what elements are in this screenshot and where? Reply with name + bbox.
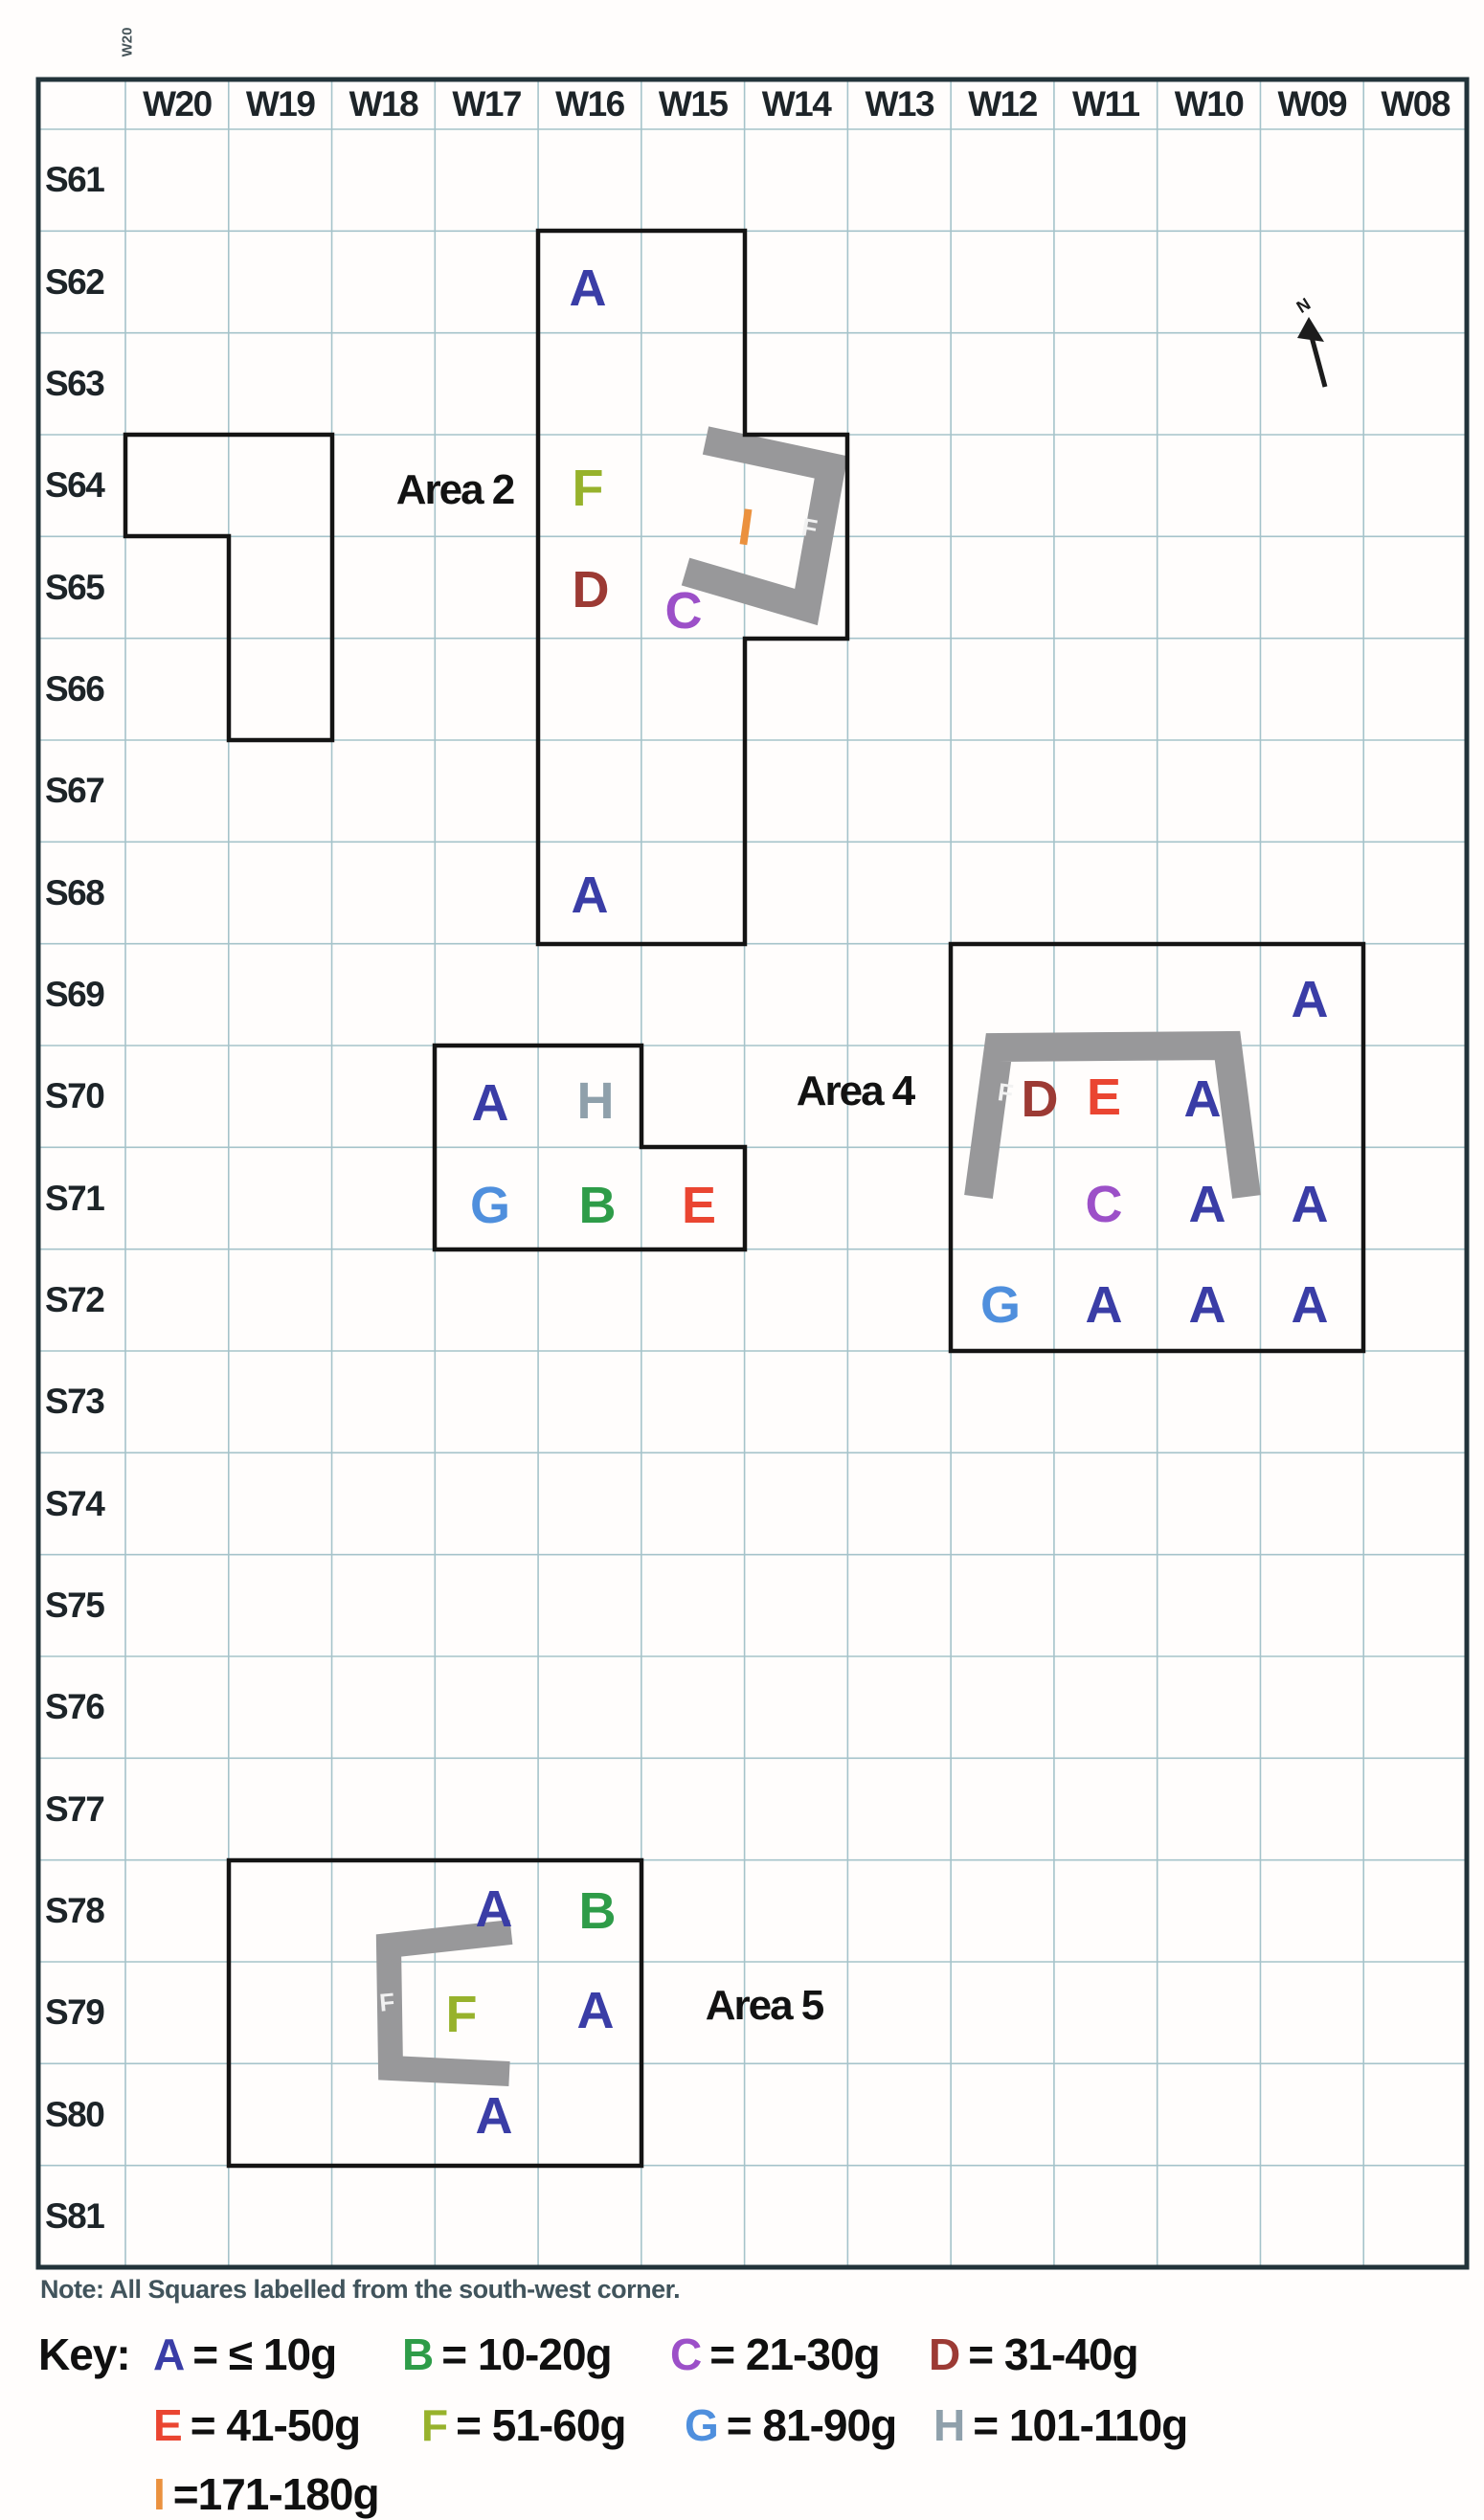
- find-letter-H-7: H: [577, 1075, 615, 1127]
- find-letter-G-8: G: [470, 1180, 510, 1231]
- find-letter-F-1: F: [573, 462, 604, 514]
- w20-edge-marker: W20: [120, 28, 136, 57]
- key-entry-E: E= 41-50g: [153, 2399, 360, 2451]
- column-header-W13: W13: [865, 84, 933, 124]
- find-letter-A-20: A: [1189, 1279, 1226, 1331]
- find-letter-A-19: A: [1086, 1279, 1123, 1331]
- key-letter-G: G: [685, 2400, 718, 2450]
- key-value-H: = 101-110g: [973, 2400, 1187, 2450]
- key-entry-G: G= 81-90g: [685, 2399, 896, 2451]
- north-label: N: [1293, 294, 1315, 317]
- feature-label: F: [996, 1077, 1015, 1108]
- find-letter-G-18: G: [980, 1279, 1021, 1331]
- key-letter-B: B: [402, 2329, 433, 2379]
- key-value-G: = 81-90g: [727, 2400, 896, 2450]
- column-header-W14: W14: [762, 84, 831, 124]
- key-value-B: = 10-20g: [441, 2329, 611, 2379]
- column-header-W11: W11: [1072, 84, 1139, 124]
- note-text: Note: All Squares labelled from the sout…: [40, 2275, 680, 2305]
- column-header-W17: W17: [452, 84, 521, 124]
- find-letter-C-15: C: [1086, 1179, 1123, 1230]
- key-letter-H: H: [933, 2400, 964, 2450]
- row-label-S77: S77: [45, 1789, 103, 1830]
- find-letter-A-6: A: [472, 1077, 509, 1129]
- find-letter-B-23: B: [579, 1885, 617, 1937]
- find-letter-B-9: B: [579, 1180, 617, 1231]
- row-label-S61: S61: [45, 160, 103, 200]
- key-value-E: = 41-50g: [191, 2400, 360, 2450]
- key-letter-F: F: [421, 2400, 447, 2450]
- key-letter-E: E: [153, 2400, 182, 2450]
- key-letter-D: D: [929, 2329, 959, 2379]
- map-overlay: FFFN: [0, 0, 1484, 2511]
- row-label-S71: S71: [45, 1179, 103, 1219]
- row-label-S79: S79: [45, 1992, 103, 2033]
- key-value-C: = 21-30g: [709, 2329, 879, 2379]
- row-label-S63: S63: [45, 364, 103, 404]
- north-arrow: N: [1293, 294, 1325, 387]
- find-letter-D-2: D: [573, 564, 610, 616]
- row-label-S78: S78: [45, 1891, 103, 1931]
- row-label-S64: S64: [45, 465, 103, 506]
- find-letter-E-13: E: [1087, 1071, 1121, 1123]
- scanned-site-map-document: { "axis_marker": {"text": "W20"}, "grid"…: [0, 0, 1484, 2511]
- find-letter-D-12: D: [1022, 1073, 1059, 1125]
- area-label-area-2: Area 2: [396, 466, 514, 514]
- key-value-I: =171-180g: [173, 2469, 379, 2519]
- find-letter-A-0: A: [570, 262, 607, 314]
- key-letter-I: I: [153, 2469, 165, 2519]
- row-label-S70: S70: [45, 1076, 103, 1116]
- key-entry-I: I=171-180g: [153, 2468, 379, 2520]
- find-letter-A-5: A: [572, 869, 609, 921]
- key-entry-A: A= ≤ 10g: [153, 2329, 336, 2380]
- feature-label: F: [378, 1987, 395, 2016]
- find-letter-E-10: E: [682, 1180, 716, 1231]
- row-label-S65: S65: [45, 568, 103, 608]
- key-prefix: Key:: [38, 2329, 130, 2380]
- key-entry-F: F= 51-60g: [421, 2399, 626, 2451]
- find-letter-A-16: A: [1189, 1179, 1226, 1230]
- column-header-W15: W15: [659, 84, 728, 124]
- column-header-W12: W12: [968, 84, 1037, 124]
- row-label-S66: S66: [45, 669, 103, 709]
- row-label-S80: S80: [45, 2095, 103, 2135]
- key-value-F: = 51-60g: [456, 2400, 625, 2450]
- row-label-S81: S81: [45, 2196, 103, 2237]
- key-letter-C: C: [670, 2329, 701, 2379]
- key-entry-B: B= 10-20g: [402, 2329, 612, 2380]
- row-label-S68: S68: [45, 873, 103, 913]
- excavation-feature-0: F: [686, 440, 831, 607]
- key-entry-H: H= 101-110g: [933, 2399, 1187, 2451]
- area-label-area-4: Area 4: [797, 1068, 914, 1115]
- row-label-S75: S75: [45, 1586, 103, 1626]
- find-letter-F-24: F: [446, 1989, 478, 2040]
- column-header-W18: W18: [349, 84, 418, 124]
- find-letter-A-25: A: [577, 1985, 615, 2036]
- column-header-W09: W09: [1278, 84, 1347, 124]
- column-header-W10: W10: [1175, 84, 1244, 124]
- find-letter-A-21: A: [1292, 1279, 1329, 1331]
- find-letter-A-11: A: [1292, 974, 1329, 1025]
- row-label-S74: S74: [45, 1484, 103, 1524]
- column-header-W19: W19: [246, 84, 315, 124]
- find-letter-C-3: C: [665, 585, 703, 637]
- column-header-W20: W20: [143, 84, 212, 124]
- row-label-S72: S72: [45, 1280, 103, 1320]
- key-entry-C: C= 21-30g: [670, 2329, 880, 2380]
- find-letter-A-17: A: [1292, 1179, 1329, 1230]
- row-label-S76: S76: [45, 1687, 103, 1727]
- key-value-A: = ≤ 10g: [192, 2329, 336, 2379]
- find-letter-A-14: A: [1184, 1073, 1222, 1125]
- row-label-S67: S67: [45, 771, 103, 811]
- row-label-S69: S69: [45, 975, 103, 1015]
- excavation-feature-2: F: [378, 1932, 511, 2074]
- column-header-W08: W08: [1381, 84, 1450, 124]
- find-letter-A-22: A: [476, 1883, 513, 1935]
- key-value-D: = 31-40g: [968, 2329, 1137, 2379]
- row-label-S62: S62: [45, 262, 103, 303]
- column-header-W16: W16: [555, 84, 624, 124]
- key-entry-D: D= 31-40g: [929, 2329, 1138, 2380]
- find-letter-A-26: A: [476, 2090, 513, 2142]
- key-letter-A: A: [153, 2329, 184, 2379]
- area-label-area-5: Area 5: [706, 1982, 823, 2030]
- row-label-S73: S73: [45, 1382, 103, 1422]
